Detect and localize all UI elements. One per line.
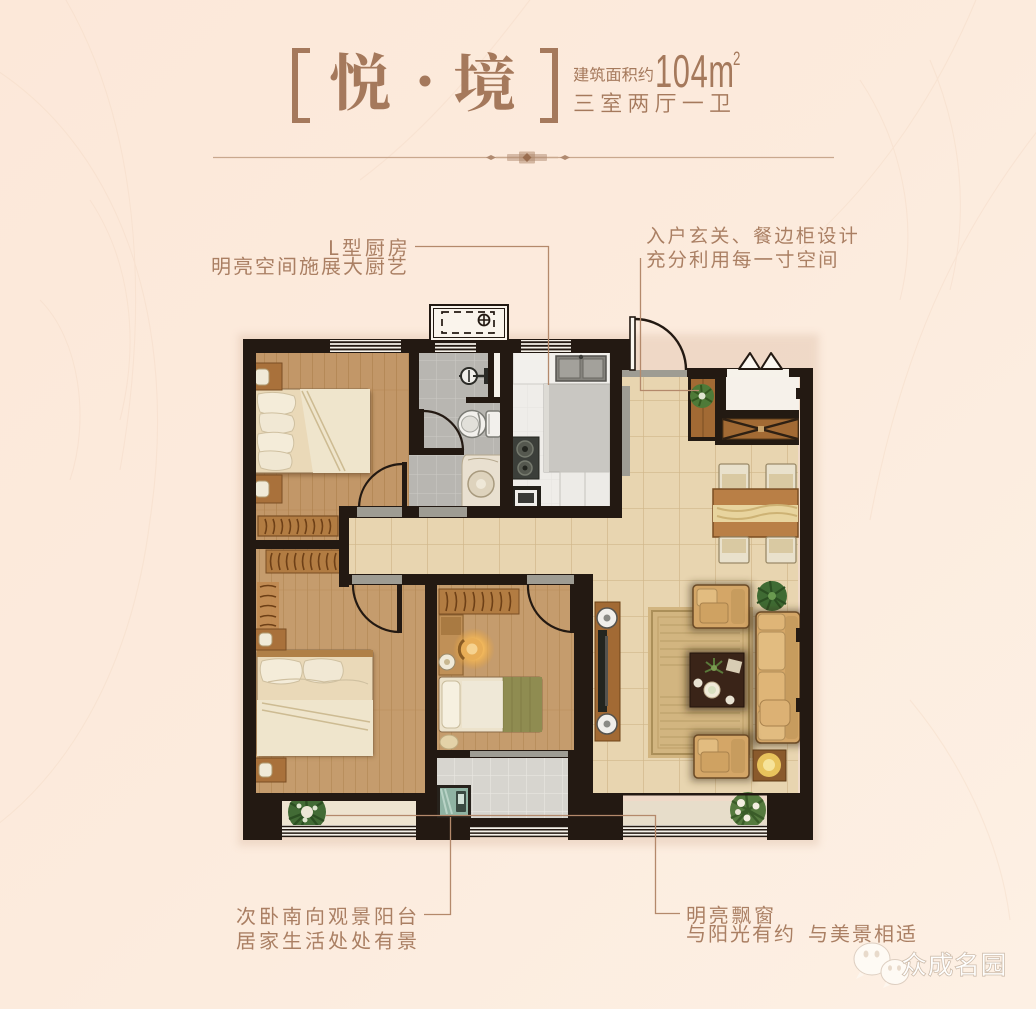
svg-text:104m: 104m — [655, 47, 735, 98]
svg-text:2: 2 — [733, 49, 740, 70]
